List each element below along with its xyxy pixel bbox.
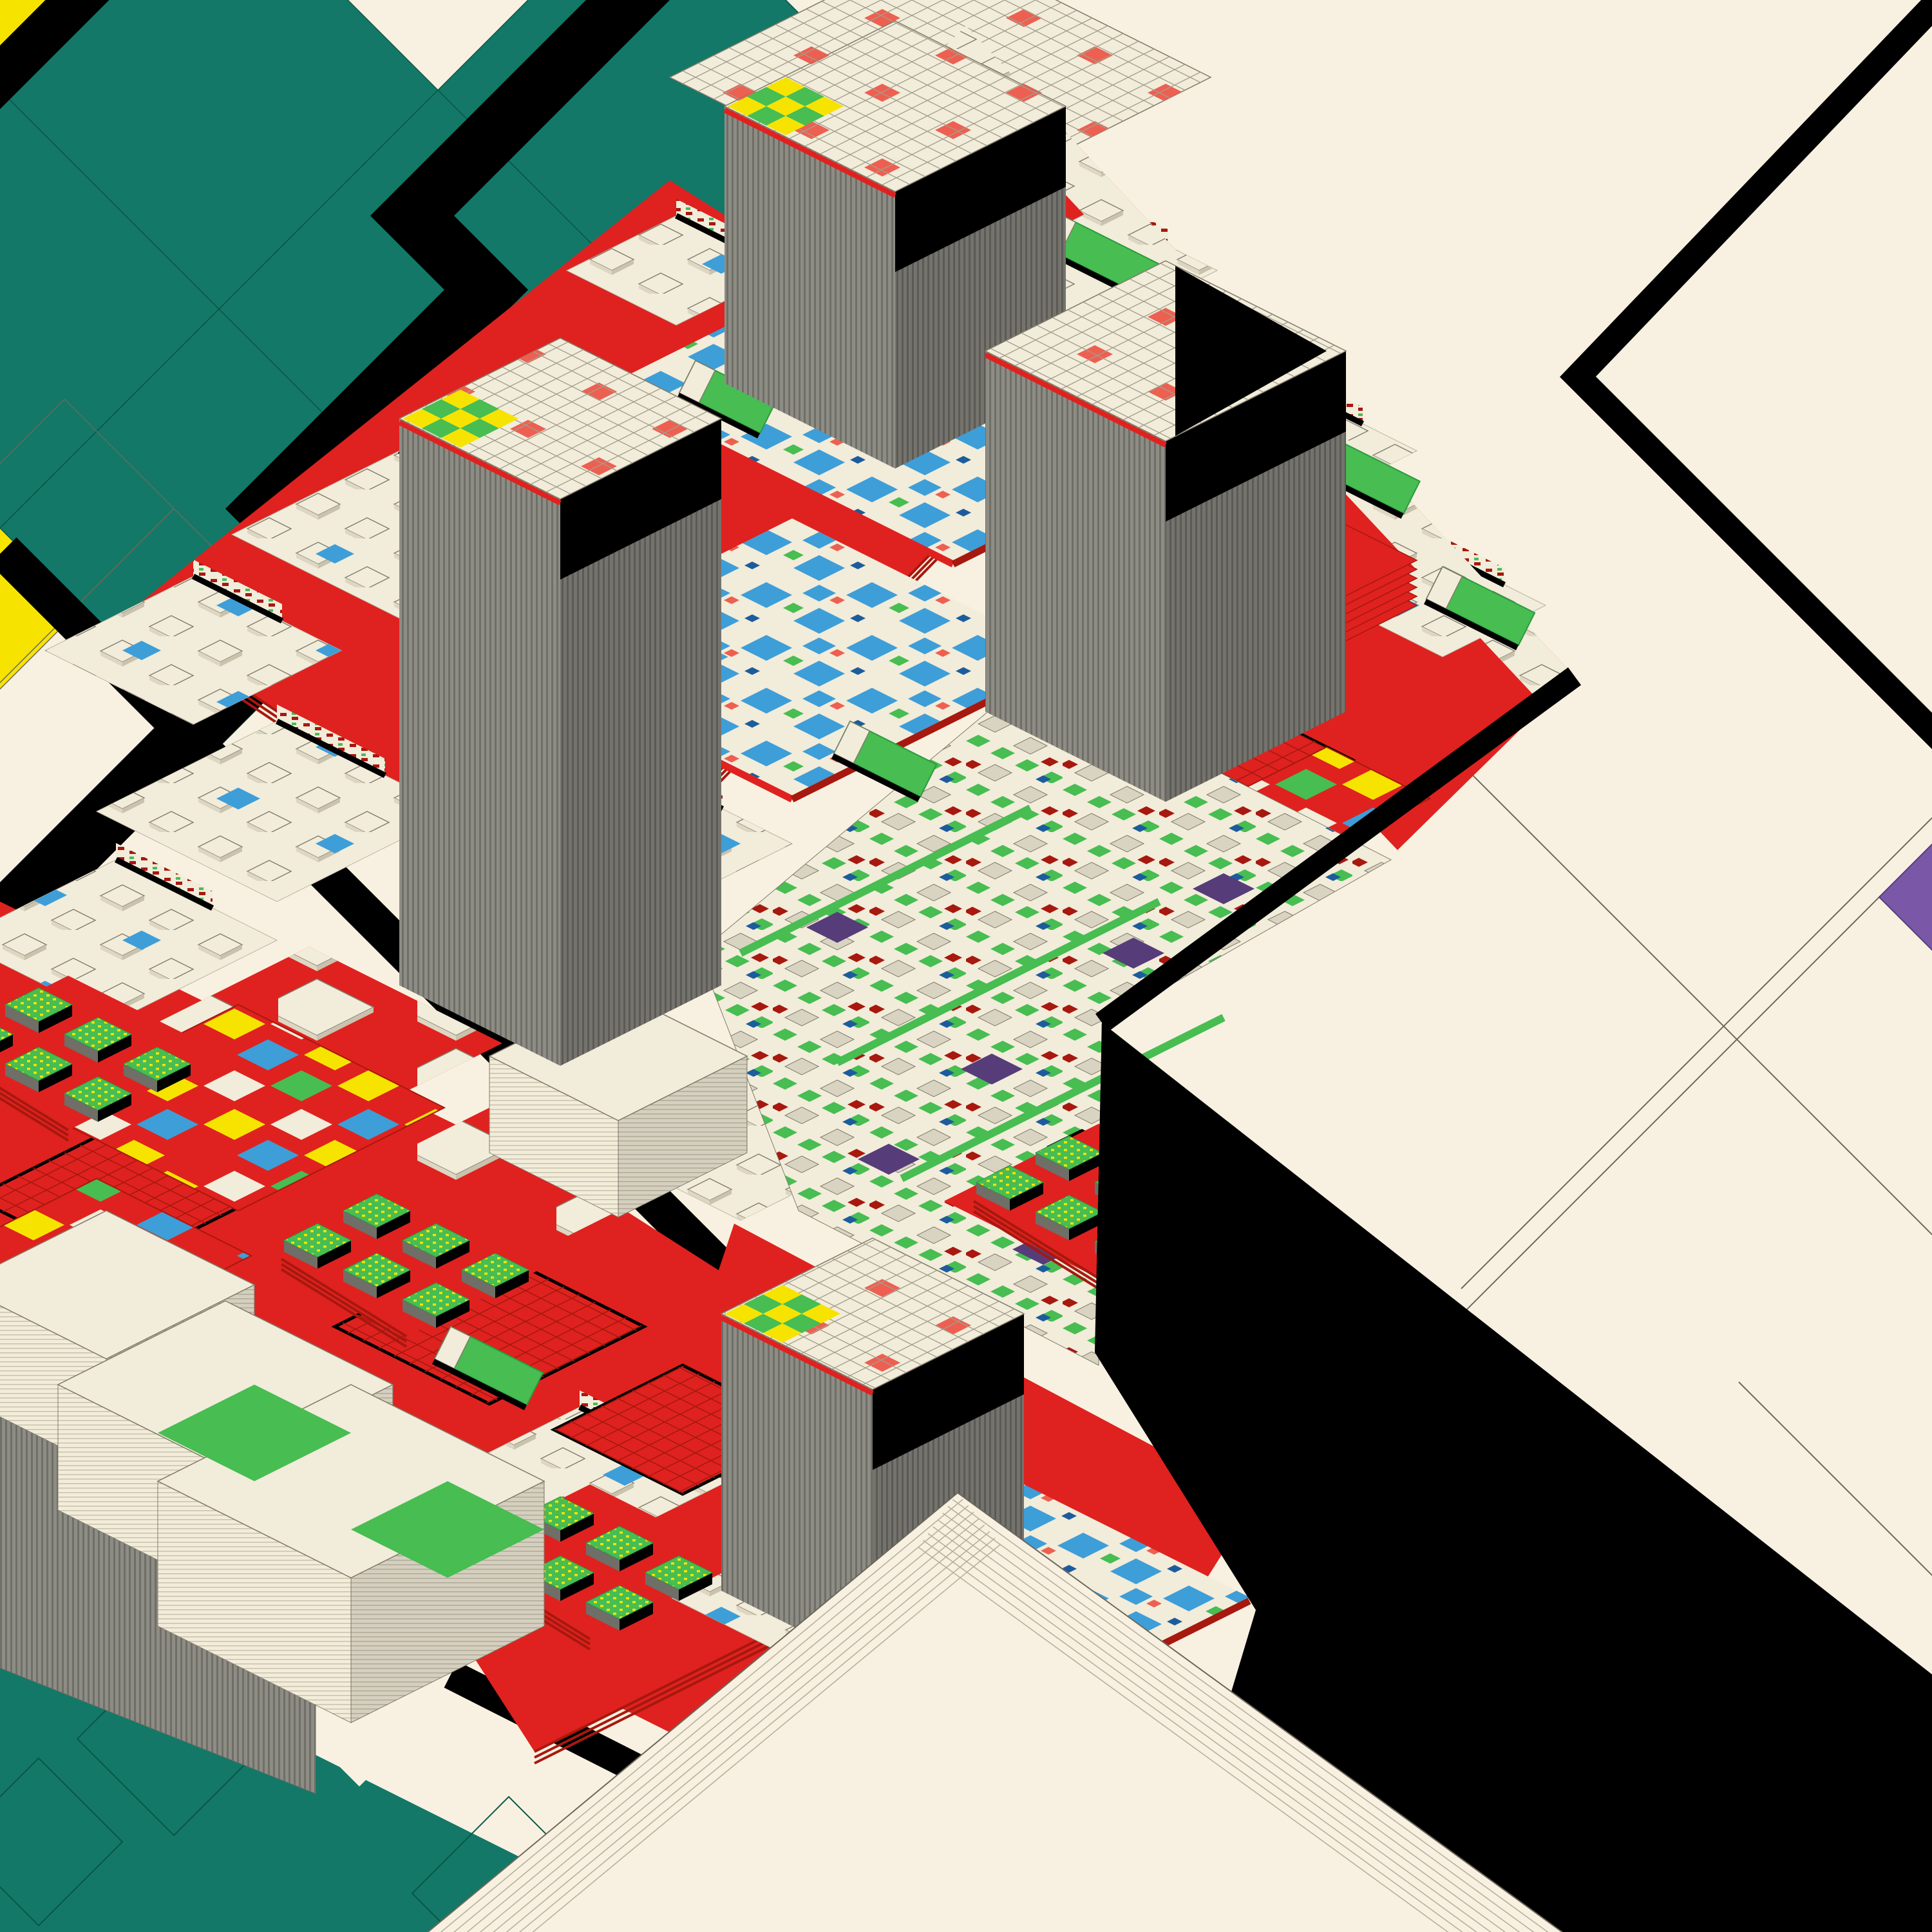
artwork-stage <box>0 0 1932 1932</box>
isometric-cityscape-canvas <box>0 0 1932 1932</box>
tower-west-left-face <box>399 419 560 1066</box>
